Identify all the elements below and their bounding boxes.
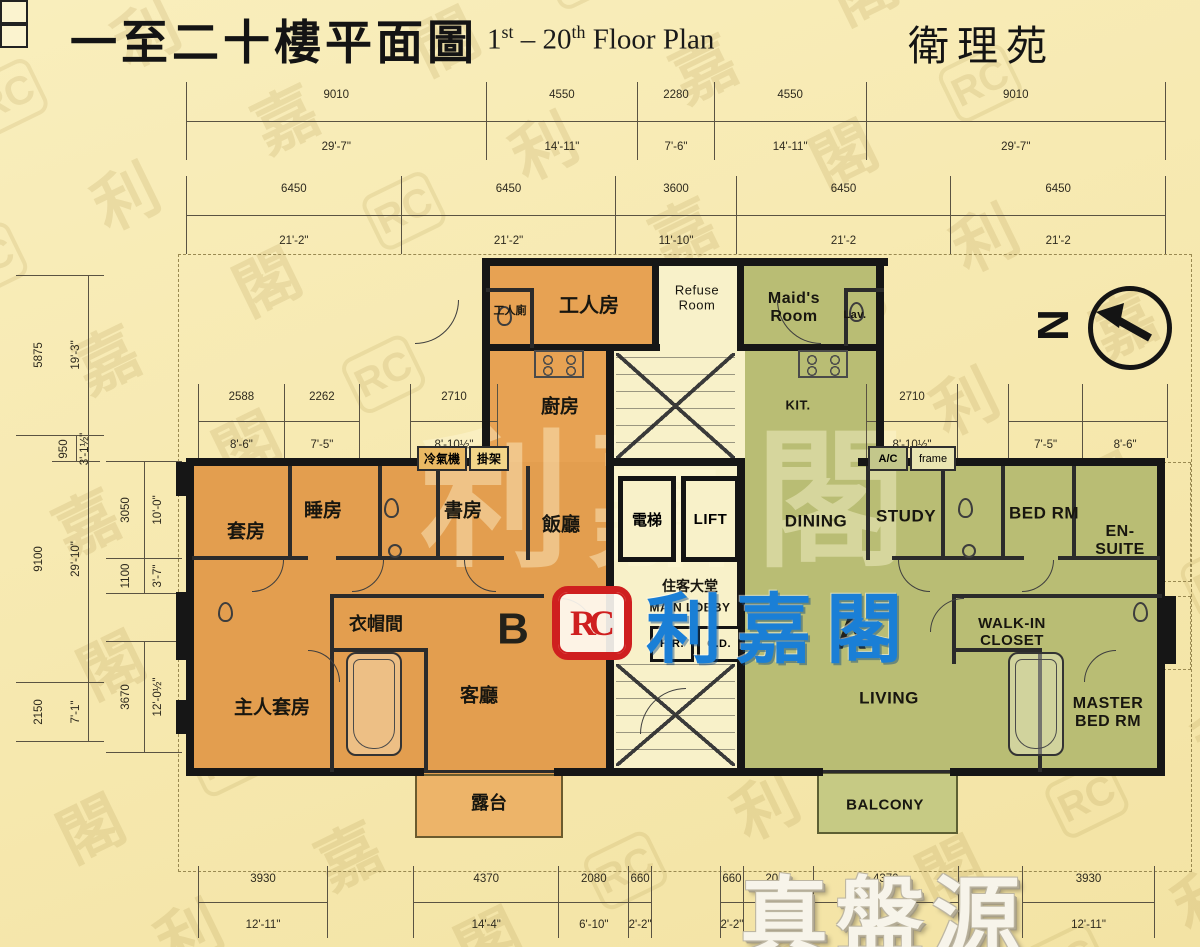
dimension-mm-label: 9010 [1003, 89, 1029, 101]
dimension-ft-label: 2'-2" [629, 919, 652, 931]
dimension-ft-label: 29'-7" [1001, 141, 1030, 153]
bathtub-icon [346, 652, 402, 756]
wall-segment [482, 258, 888, 266]
lift-shaft-en: LIFT [681, 476, 740, 562]
dimension-mm-label: 4550 [549, 89, 575, 101]
dimension-mm-label: 2710 [899, 391, 925, 403]
dimension-segment: 645021'-2 [951, 176, 1166, 254]
dimension-segment: 901029'-7" [186, 82, 487, 160]
partition-wall [486, 288, 534, 292]
room-label-bedroom: 睡房 [304, 500, 342, 521]
dimension-mm-label: 2280 [663, 89, 689, 101]
dimension-mm-label: 9010 [323, 89, 349, 101]
dimension-mm-label: 4370 [473, 873, 499, 885]
dimension-column-left-950: 9503'-1½" [52, 435, 100, 462]
wall-segment [176, 462, 188, 496]
room-label-workers-toilet: 工人廁 [494, 305, 527, 317]
dimension-segment: 7'-5" [1008, 384, 1083, 458]
dimension-segment: 11003'-7" [106, 559, 182, 594]
room-label-balcony-a: BALCONY [846, 798, 924, 815]
dimension-segment: 645021'-2 [737, 176, 952, 254]
wall-segment [737, 258, 744, 350]
lift-shaft-zh: 電梯 [618, 476, 676, 562]
dimension-row-top-2: 645021'-2"645021'-2"360011'-10"645021'-2… [186, 176, 1166, 254]
ac-rack-label: 掛架 [477, 450, 501, 467]
building-name: 衛理苑 [908, 12, 1055, 72]
pattern-glyph: 利 [50, 126, 198, 261]
bathtub-icon [1008, 652, 1064, 756]
wall-segment [176, 700, 188, 734]
dimension-mm-label: 6450 [281, 183, 307, 195]
dimension-segment: 901029'-7" [867, 82, 1167, 160]
dimension-segment: 910029'-10" [16, 436, 104, 683]
partition-wall [424, 770, 554, 773]
wall-segment [745, 768, 823, 776]
dimension-ft-label: 7'-5" [1034, 439, 1057, 451]
dimension-segment: 8'-6" [1083, 384, 1168, 458]
walkin-line2: CLOSET [978, 633, 1046, 650]
partition-wall [941, 466, 945, 560]
master-line1: MASTER [1073, 695, 1144, 713]
dimension-column-left-inner: 305010'-0"11003'-7" [106, 461, 182, 594]
room-label-living-a: LIVING [859, 688, 919, 707]
dimension-segment: 25888'-6" [198, 384, 285, 458]
partition-wall [378, 466, 382, 560]
maids-line1: Maid's [768, 290, 820, 308]
dimension-mm-label: 3050 [120, 497, 132, 523]
wall-segment [652, 258, 659, 350]
dimension-ft-label: 12'-0½" [152, 678, 164, 717]
dimension-mm-label: 2080 [581, 873, 607, 885]
dimension-segment: 367012'-0½" [106, 641, 182, 753]
dimension-ft-label: 7'-6" [665, 141, 688, 153]
room-label-workers-room: 工人房 [559, 295, 619, 317]
master-line2: BED RM [1073, 713, 1144, 731]
dimension-ft-label: 21'-2" [494, 235, 523, 247]
partition-wall [866, 466, 870, 560]
partition-wall [330, 594, 544, 598]
center-watermark: RC 利嘉閣 [552, 568, 916, 678]
dimension-row-bottom-right-2: 393012'-11" [1022, 866, 1155, 938]
dimension-mm-label: 3930 [250, 873, 276, 885]
partition-wall [288, 466, 292, 560]
ac-rack-box-b: 掛架 [469, 446, 509, 471]
ensuite-line1: EN- [1095, 523, 1145, 541]
toilet-icon [384, 498, 399, 518]
partition-wall [952, 594, 1162, 598]
north-label: N [1027, 309, 1077, 341]
dimension-segment: 22627'-5" [285, 384, 360, 458]
stove-icon [798, 350, 848, 378]
dimension-ft-label: 29'-10" [70, 541, 82, 577]
dimension-column-left-inner-2: 367012'-0½" [106, 641, 182, 753]
dimension-mm-label: 6450 [1045, 183, 1071, 195]
room-label-dining-a: DINING [785, 511, 848, 530]
dimension-ft-label: 10'-0" [152, 495, 164, 524]
partition-wall [526, 466, 530, 560]
dimension-ft-label: 12'-11" [1071, 919, 1106, 931]
dimension-mm-label: 2150 [33, 699, 45, 725]
partition-wall [424, 648, 428, 772]
dimension-column-left-outer: 587519'-3"910029'-10"21507'-1" [16, 275, 104, 742]
dimension-ft-label: 12'-11" [246, 919, 281, 931]
dimension-row-bottom-left-2: 437014'-4"20806'-10"6602'-2" [413, 866, 652, 938]
dimension-mm-label: 6450 [831, 183, 857, 195]
room-label-cloakroom: 衣帽間 [349, 614, 403, 634]
dimension-segment: 455014'-11" [487, 82, 639, 160]
room-label-kitchen-a: KIT. [785, 399, 810, 414]
north-compass: N [1030, 280, 1170, 370]
toilet-icon [958, 498, 973, 518]
room-label-study-b: 書房 [444, 500, 482, 521]
washbasin-icon [388, 544, 402, 558]
dimension-segment: 21507'-1" [16, 683, 104, 742]
ac-box-a: A/C [868, 446, 908, 471]
dimension-mm-label: 950 [58, 439, 70, 458]
ac-frame-box-a: frame [910, 446, 956, 471]
wall-segment [186, 768, 424, 776]
pattern-glyph: 閣 [15, 757, 163, 892]
room-label-living-b: 客廳 [460, 685, 498, 706]
ac-unit-box-b: 冷氣機 [417, 446, 467, 471]
dimension-ft-label: 29'-7" [322, 141, 351, 153]
dimension-mm-label: 3600 [663, 183, 689, 195]
stove-icon [534, 350, 584, 378]
room-label-maids-room: Maid's Room [768, 290, 820, 326]
toilet-icon [218, 602, 233, 622]
dimension-mm-label: 660 [722, 873, 741, 885]
ricacorp-logo-icon: RC [552, 586, 632, 660]
title-en-sup: st [502, 22, 514, 42]
ac-label: A/C [879, 453, 898, 465]
title-en-part: Floor Plan [585, 24, 714, 56]
dimension-ft-label: 14'-4" [472, 919, 501, 931]
dimension-ft-label: 14'-11" [544, 141, 579, 153]
room-label-kitchen-b: 廚房 [541, 396, 579, 417]
ensuite-line2: SUITE [1095, 541, 1145, 559]
center-watermark-text: 利嘉閣 [646, 568, 916, 678]
dimension-ft-label: 21'-2 [831, 235, 856, 247]
staircase-upper [616, 353, 735, 459]
dimension-segment: 393012'-11" [1022, 866, 1155, 938]
dimension-segment: 455014'-11" [715, 82, 867, 160]
dimension-mm-label: 2710 [441, 391, 467, 403]
bottom-right-watermark: 真盤源 [740, 848, 1028, 947]
frame-label: frame [919, 453, 947, 465]
dimension-ft-label: 7'-5" [310, 439, 333, 451]
refuse-line2: Room [675, 298, 719, 313]
dimension-ft-label: 21'-2" [279, 235, 308, 247]
wall-segment [606, 344, 614, 466]
dimension-ft-label: 21'-2 [1046, 235, 1071, 247]
lift-label-en: LIFT [694, 511, 728, 528]
dimension-segment: 437014'-4" [413, 866, 559, 938]
dimension-segment: 587519'-3" [16, 275, 104, 436]
washbasin-icon [962, 544, 976, 558]
pattern-rc-logo-icon: RC [537, 0, 628, 13]
dimension-mm-label: 3670 [120, 684, 132, 710]
dimension-segment: 360011'-10" [616, 176, 736, 254]
partition-wall [1001, 466, 1005, 560]
walkin-line1: WALK-IN [978, 616, 1046, 633]
dimension-segment: 645021'-2" [402, 176, 617, 254]
dimension-ft-label: 8'-6" [1114, 439, 1137, 451]
unit-b-letter: B [497, 604, 529, 653]
room-label-balcony-b: 露台 [471, 793, 507, 813]
page-title-en: 1st – 20th Floor Plan [487, 22, 714, 57]
floor-plan-page: 利嘉閣RC利嘉閣RC利嘉閣RC利嘉閣RC利嘉閣RC利嘉閣RC利嘉閣RC利嘉閣RC… [0, 0, 1200, 947]
pattern-rc-logo-icon: RC [0, 55, 52, 140]
dimension-mm-label: 6450 [496, 183, 522, 195]
room-label-master-suite-b: 主人套房 [234, 697, 310, 718]
room-label-study-a: STUDY [876, 506, 936, 525]
dimension-mm-label: 2262 [309, 391, 335, 403]
dimension-ft-label: 3'-1½" [79, 432, 91, 465]
dimension-mm-label: 2588 [229, 391, 255, 403]
room-label-bed-rm: BED RM [1009, 503, 1079, 522]
lift-label-zh: 電梯 [632, 509, 662, 530]
wall-segment [606, 768, 745, 776]
wall-segment [176, 592, 188, 660]
dimension-row-sub-right-2: 7'-5"8'-6" [1008, 384, 1168, 458]
title-en-sup: th [572, 22, 586, 42]
dimension-mm-label: 3930 [1076, 873, 1102, 885]
north-arrow-icon [1088, 286, 1162, 360]
dimension-ft-label: 3'-7" [152, 564, 164, 587]
dimension-row-sub-left: 25888'-6"22627'-5" [198, 384, 360, 458]
title-en-part: – 20 [514, 24, 572, 56]
dimension-ft-label: 19'-3" [70, 341, 82, 370]
title-en-part: 1 [487, 24, 502, 56]
partition-wall [530, 288, 534, 348]
room-label-lav: Lav. [843, 309, 866, 321]
dimension-ft-label: 11'-10" [659, 235, 694, 247]
partition-wall [823, 770, 950, 773]
dimension-mm-label: 4550 [777, 89, 803, 101]
ac-platform-outline [1163, 462, 1191, 582]
room-label-walk-in-closet: WALK-IN CLOSET [978, 616, 1046, 650]
dimension-ft-label: 14'-11" [773, 141, 808, 153]
dimension-mm-label: 5875 [33, 343, 45, 369]
dimension-row-top-1: 901029'-7"455014'-11"22807'-6"455014'-11… [186, 82, 1166, 160]
dimension-mm-label: 1100 [120, 563, 132, 588]
maids-line2: Room [768, 308, 820, 326]
toilet-icon [1133, 602, 1148, 622]
pattern-glyph: 嘉 [0, 835, 3, 947]
room-label-suite: 套房 [227, 521, 265, 542]
dimension-segment: 305010'-0" [106, 461, 182, 559]
dimension-segment: 645021'-2" [186, 176, 402, 254]
dimension-segment: 20806'-10" [559, 866, 629, 938]
wall-segment [606, 458, 745, 466]
partition-wall [192, 556, 308, 560]
partition-wall [330, 594, 334, 772]
dimension-ft-label: 6'-10" [579, 919, 608, 931]
wall-segment [1164, 596, 1176, 664]
ac-unit-label: 冷氣機 [424, 450, 460, 467]
dimension-segment: 22807'-6" [638, 82, 715, 160]
dimension-ft-label: 8'-6" [230, 439, 253, 451]
room-label-master-bed-rm: MASTER BED RM [1073, 695, 1144, 731]
room-label-ensuite: EN- SUITE [1095, 523, 1145, 559]
page-title-zh: 一至二十樓平面圖 [70, 4, 478, 73]
partition-wall [844, 288, 884, 292]
refuse-line1: Refuse [675, 283, 719, 298]
dimension-row-bottom-left: 393012'-11" [198, 866, 328, 938]
dimension-ft-label: 7'-1" [70, 700, 82, 723]
dimension-segment: 9503'-1½" [52, 435, 100, 462]
room-label-dining-b: 飯廳 [542, 514, 580, 535]
dimension-mm-label: 660 [631, 873, 650, 885]
room-label-refuse-room: Refuse Room [675, 283, 719, 312]
dimension-mm-label: 9100 [33, 546, 45, 572]
partition-wall [436, 466, 440, 560]
dimension-segment: 393012'-11" [198, 866, 328, 938]
wall-segment [950, 768, 1165, 776]
dimension-segment: 6602'-2" [629, 866, 652, 938]
